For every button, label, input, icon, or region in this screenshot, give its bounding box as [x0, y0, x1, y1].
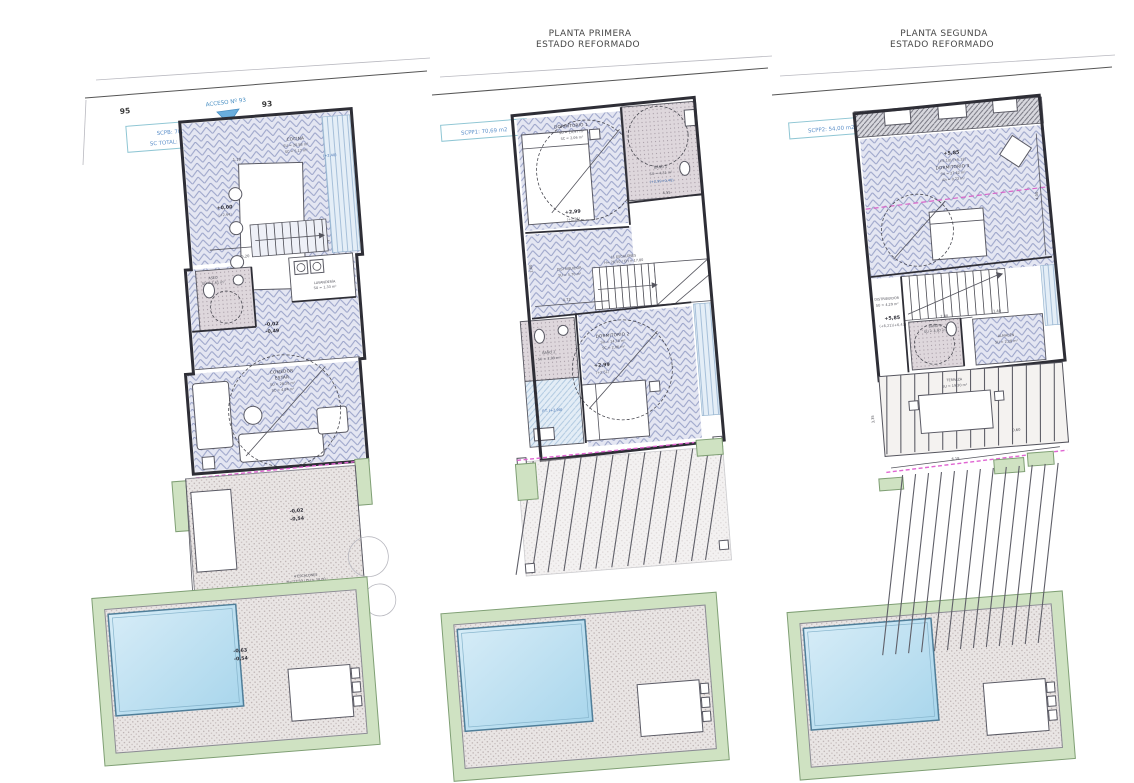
dim-right: 4,00 [1035, 191, 1040, 200]
distribuidor-label: DISTRIBUIDOR [874, 296, 900, 302]
drawing-canvas: PLANTA PRIMERA ESTADO REFORMADO PLANTA S… [0, 0, 1134, 783]
lavanderia-room: LAVANDERÍA SU = 1,33 m² [289, 253, 356, 302]
dim-terrace-s: 0,60 [1012, 428, 1021, 433]
lot-line [440, 56, 772, 77]
dim-terrace-v: 3,35 [871, 415, 876, 423]
plan-ground-floor: SCPB: 70,94 m2 SC TOTAL: 195,26 m2 (+2,4… [55, 108, 407, 766]
planter-left [515, 463, 538, 500]
dim-stairs2: 1,40 [993, 309, 1002, 314]
terrace-planter-bed [191, 489, 237, 572]
aseo-room: ASEO SU = 1,61 m² [195, 267, 256, 331]
dim-terrace-h: 6,19 [951, 457, 960, 462]
lot-line [432, 68, 768, 95]
lot-line [96, 58, 430, 80]
bathroom1: BAÑO 1 SU = 4,31 m² (+2,99+0,45) 4,55 [622, 101, 703, 201]
plan-second-title-line1: PLANTA SEGUNDA [900, 29, 988, 39]
dim-hall: 5,20 [241, 254, 250, 259]
pool-area [787, 591, 1075, 780]
planter-right [696, 438, 723, 456]
plan-first-title-line2: ESTADO REFORMADO [536, 40, 640, 50]
level-pool: -0,63 [233, 647, 247, 654]
plan-second-floor: SCPP2: 54,00 m2 +5,85 (+6,10)/(+6,32) DO… [748, 95, 1096, 780]
lot-line [83, 100, 86, 165]
dim-corridor: 4,72 [563, 298, 571, 303]
pool-area [92, 577, 380, 766]
bathroom3: BAÑO 3 SU = 4,97 m² [909, 318, 965, 370]
dim-stairs: 2,40 [940, 314, 949, 319]
dim-corridor-v: 1,80 [529, 264, 534, 273]
floorplan-sheet: PLANTA PRIMERA ESTADO REFORMADO PLANTA S… [0, 0, 1134, 783]
plan-second-title-line2: ESTADO REFORMADO [890, 40, 994, 50]
sheet-titles: PLANTA PRIMERA ESTADO REFORMADO PLANTA S… [536, 29, 994, 50]
level-mid: +5,85 [884, 315, 900, 322]
level-mid-sub: (+6,21)(+6,43) [879, 322, 907, 328]
dim-bano1: 4,55 [662, 191, 670, 196]
level-terrace-sub: -0,54 [290, 516, 305, 523]
lot-line [780, 55, 1115, 76]
planter-right [994, 458, 1025, 474]
street-number-95: 95 [119, 106, 130, 116]
stairs-ground [250, 219, 328, 257]
distribuidor-su: SU = 4,29 m² [876, 302, 900, 308]
access-label: ACCESO Nº 93 [205, 97, 247, 109]
level-hall-sub: -0,49 [265, 328, 280, 335]
stairs-second [901, 268, 1008, 320]
street-number-93: 93 [261, 99, 272, 109]
terraza: TERRAZA SU = 19,30 m² 3,35 [868, 362, 1069, 457]
level-pool-sub: -0,54 [234, 655, 249, 662]
bano2-label: BAÑO 2 [542, 349, 555, 355]
aseo-label: ASEO [208, 276, 218, 281]
lot-line [772, 67, 1112, 95]
plan-first-title-line1: PLANTA PRIMERA [549, 29, 632, 39]
plan-first-floor: SCPP1: 70,69 m2 DORMITORIO 1 SU = 10,97 … [402, 97, 749, 781]
planter-left [879, 477, 904, 491]
dim-table: 1,19 [233, 157, 242, 162]
storage-room: ALMACÉN SU = 2,28 m² [973, 314, 1046, 365]
bano1-label: BAÑO 1 [654, 164, 667, 170]
level-top: +5,85 [943, 150, 959, 157]
level-terrace: -0,02 [289, 508, 303, 515]
bano3-label: BAÑO 3 [928, 323, 941, 329]
level-hall: -0,02 [265, 321, 279, 328]
planter-right2 [1027, 451, 1054, 466]
pool-area [441, 592, 729, 781]
lot-line [85, 71, 427, 98]
